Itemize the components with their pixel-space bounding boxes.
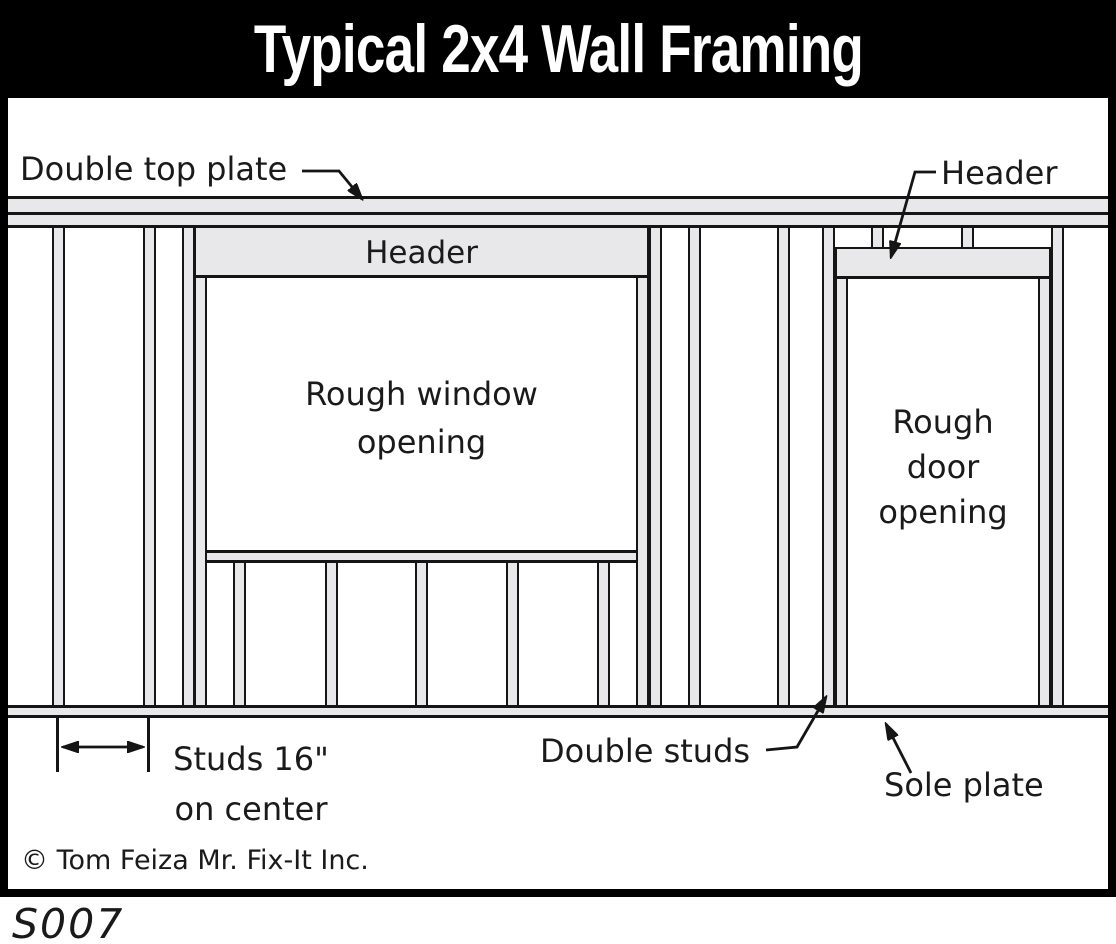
- double-top-plate-arrow: [302, 171, 362, 199]
- trimmer-stud-door-right: [1038, 279, 1051, 705]
- figure-title: Typical 2x4 Wall Framing: [253, 10, 862, 88]
- rough-door-line1: Rough: [892, 403, 993, 441]
- trimmer-stud-window-right: [636, 278, 649, 705]
- frame-border-left: [0, 98, 8, 897]
- rough-window-line2: opening: [357, 423, 486, 461]
- cripple-stud: [506, 563, 519, 705]
- stud-spacing-line1: Studs 16": [173, 740, 329, 778]
- king-stud-window-right: [649, 228, 662, 705]
- cripple-stud-above-door-header: [961, 228, 974, 247]
- rough-door-opening-label: Rough door opening: [848, 400, 1038, 535]
- figure-code: S007: [12, 901, 124, 944]
- window-rough-sill: [207, 550, 636, 563]
- frame-border-bottom: [0, 889, 1116, 897]
- double-top-plate-label: Double top plate: [20, 151, 287, 188]
- common-stud: [777, 228, 790, 705]
- door-header: [835, 247, 1051, 279]
- title-bar: Typical 2x4 Wall Framing: [0, 0, 1116, 98]
- stud-spacing-label: Studs 16" on center: [158, 734, 344, 834]
- common-stud: [688, 228, 701, 705]
- cripple-stud: [233, 563, 246, 705]
- rough-door-line2: door: [907, 448, 980, 486]
- cripple-stud-above-door-header: [871, 228, 884, 247]
- rough-window-opening-label: Rough window opening: [207, 370, 636, 466]
- frame-border-right: [1108, 98, 1116, 897]
- copyright-notice: © Tom Feiza Mr. Fix-It Inc.: [21, 845, 369, 876]
- common-stud: [52, 228, 65, 705]
- common-stud: [143, 228, 156, 705]
- cripple-stud: [415, 563, 428, 705]
- rough-door-line3: opening: [878, 493, 1007, 531]
- sole-plate: [8, 705, 1108, 718]
- top-plate-lower: [8, 215, 1108, 228]
- top-plate-upper: [8, 196, 1108, 215]
- cripple-stud: [597, 563, 610, 705]
- door-header-label: Header: [941, 155, 1058, 192]
- trimmer-stud-window-left: [194, 278, 207, 705]
- rough-window-line1: Rough window: [305, 375, 538, 413]
- king-stud-door-right: [1051, 228, 1064, 705]
- window-header-label: Header: [194, 228, 649, 278]
- trimmer-stud-door-left: [835, 279, 848, 705]
- sole-plate-label: Sole plate: [884, 767, 1044, 804]
- double-studs-label: Double studs: [540, 733, 750, 770]
- wall-framing-figure: Typical 2x4 Wall Framing: [0, 0, 1116, 944]
- king-stud-door-left: [822, 228, 835, 705]
- cripple-stud: [325, 563, 338, 705]
- stud-spacing-line2: on center: [175, 790, 328, 828]
